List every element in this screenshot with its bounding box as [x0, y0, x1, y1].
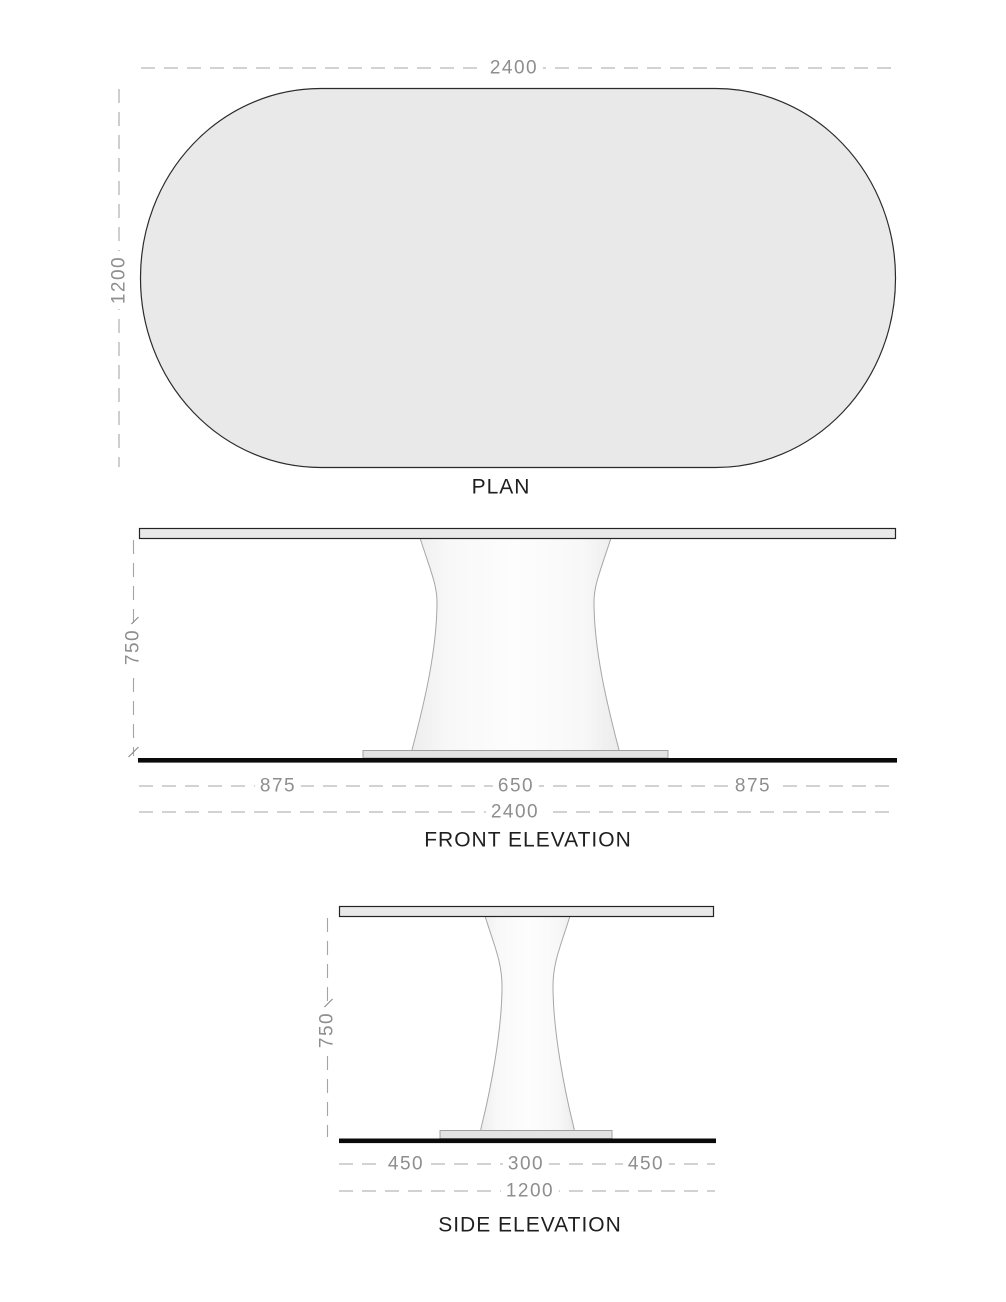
front-overall-width-dim-label: 2400: [486, 803, 544, 822]
side-elevation-title: SIDE ELEVATION: [438, 1215, 622, 1236]
side-base-plate: [440, 1131, 612, 1139]
plan-width-dim-label: 2400: [485, 59, 543, 78]
front-floor-line: [138, 758, 897, 763]
front-elevation-title: FRONT ELEVATION: [424, 830, 632, 851]
front-pedestal: [411, 538, 620, 758]
side-tabletop: [340, 907, 714, 917]
front-right-overhang-dim-label: 875: [730, 777, 776, 796]
side-right-overhang-dim-label: 450: [623, 1155, 669, 1174]
front-pedestal-base-dim-label: 650: [493, 777, 539, 796]
plan-depth-dim-label: 1200: [110, 251, 129, 309]
plan-view-title: PLAN: [472, 477, 531, 498]
technical-drawing-sheet: 2400 1200 PLAN 750 875 650 875 2400 FRON…: [0, 0, 1006, 1302]
side-overall-width-dim-label: 1200: [501, 1182, 559, 1201]
side-pedestal-base-dim-label: 300: [503, 1155, 549, 1174]
front-tabletop: [140, 529, 896, 539]
plan-tabletop-outline: [141, 89, 896, 468]
drawing-canvas: [0, 0, 1006, 1302]
front-base-plate: [363, 751, 668, 759]
side-floor-line: [339, 1139, 716, 1144]
front-left-overhang-dim-label: 875: [255, 777, 301, 796]
front-height-dim-label: 750: [124, 624, 143, 670]
side-height-dim-label: 750: [318, 1007, 337, 1053]
side-pedestal: [480, 916, 575, 1133]
side-left-overhang-dim-label: 450: [383, 1155, 429, 1174]
